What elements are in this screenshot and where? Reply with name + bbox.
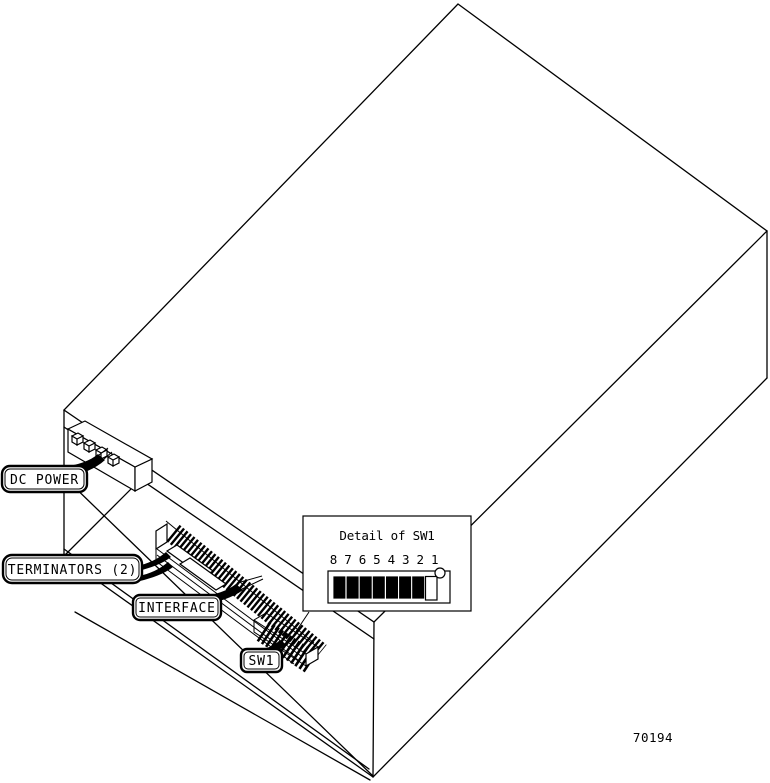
dip-switch-cell-5	[373, 577, 384, 598]
base-edge-line-3	[75, 612, 370, 780]
terminators-label: TERMINATORS (2)	[8, 563, 137, 578]
drive-isometric-diagram: Detail of SW1 8 7 6 5 4 3 2 1 DC POWER T…	[0, 0, 770, 783]
detail-inset: Detail of SW1 8 7 6 5 4 3 2 1	[287, 516, 471, 645]
dip-switch-cell-7	[347, 577, 358, 598]
interface-connector-teeth	[173, 533, 320, 653]
dc-pin-2	[84, 440, 95, 452]
dip-position-labels: 8 7 6 5 4 3 2 1	[330, 552, 438, 567]
dc-pin-4	[108, 454, 119, 466]
dip-switch-cell-6	[360, 577, 371, 598]
dip-switch	[328, 568, 450, 603]
dip-switch-cell-8	[334, 577, 345, 598]
dip-switch-cell-3	[400, 577, 411, 598]
enclosure-front-vertical-edge	[373, 622, 374, 777]
dc-pin-1	[72, 433, 83, 445]
callout-sw1: SW1	[241, 640, 286, 672]
dip-switch-cell-1	[426, 577, 438, 601]
inset-title: Detail of SW1	[339, 528, 434, 543]
sw1-label: SW1	[249, 654, 275, 669]
diagram-canvas: Detail of SW1 8 7 6 5 4 3 2 1 DC POWER T…	[0, 0, 770, 783]
interface-connector-left-cap	[156, 524, 167, 549]
dc-power-label: DC POWER	[10, 473, 79, 488]
interface-label: INTERFACE	[138, 601, 216, 616]
figure-number: 70194	[633, 730, 673, 745]
enclosure-outline	[64, 4, 767, 780]
callout-terminators: TERMINATORS (2)	[3, 552, 173, 583]
dip-switch-index-dot	[435, 568, 445, 578]
dip-switch-cell-4	[387, 577, 398, 598]
sw1-switch-right-cap	[306, 647, 318, 666]
dip-switch-cell-2	[413, 577, 424, 598]
